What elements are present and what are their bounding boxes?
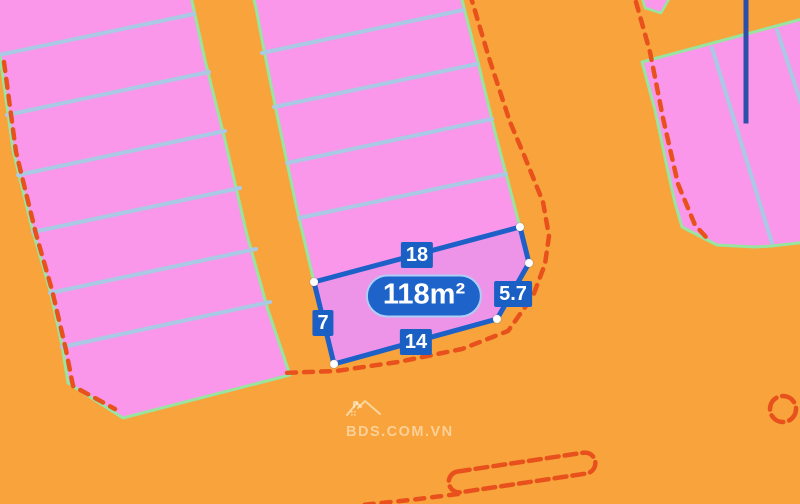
dimension-label-left: 7	[312, 310, 333, 336]
map-canvas[interactable]: 18 5.7 7 14 118m² BDS.COM.VN	[0, 0, 800, 504]
parcel-blocks	[0, 0, 800, 418]
dimension-label-top: 18	[401, 242, 433, 268]
dimension-label-right: 5.7	[494, 281, 532, 307]
parcel-corner-fragment	[641, 0, 672, 13]
plot-area-badge[interactable]: 118m²	[366, 275, 482, 318]
vertex-handle[interactable]	[310, 278, 318, 286]
house-icon	[346, 399, 382, 419]
road-edge-dashed-bottom	[362, 494, 458, 504]
vertex-handle[interactable]	[525, 259, 533, 267]
road-island-outline	[447, 451, 596, 494]
watermark-text: BDS.COM.VN	[346, 425, 466, 440]
watermark: BDS.COM.VN	[346, 399, 466, 440]
vertex-handle[interactable]	[516, 223, 524, 231]
vertex-handle[interactable]	[493, 315, 501, 323]
road-marker-ring	[770, 396, 796, 422]
dimension-label-bottom: 14	[400, 329, 432, 355]
vertex-handle[interactable]	[330, 360, 338, 368]
